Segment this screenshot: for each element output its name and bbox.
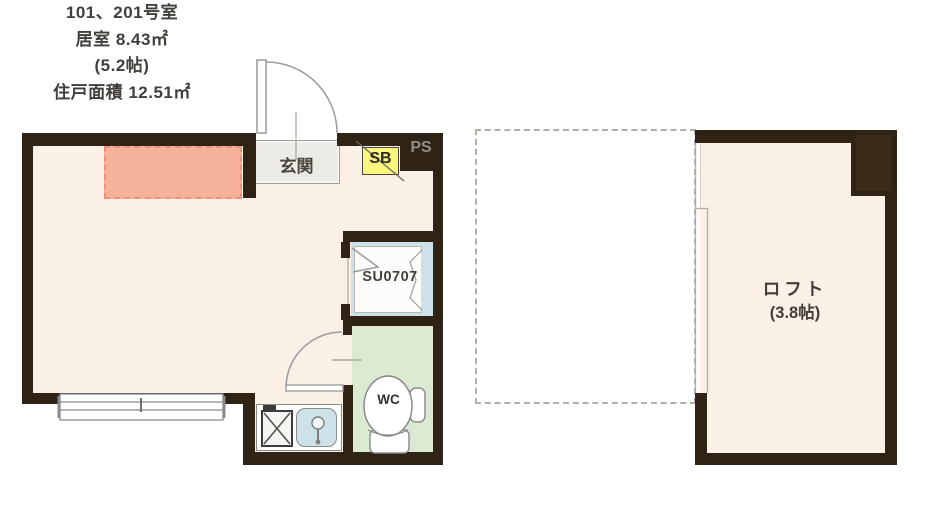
entrance-label: 玄関 [253, 152, 340, 177]
swing-door-icon [286, 332, 362, 391]
faucet-icon [312, 417, 324, 444]
toilet-label: WC [366, 392, 411, 407]
loft-size-label: (3.8帖) [725, 299, 865, 323]
sliding-window-icon [59, 394, 225, 420]
unit-bath-label: SU0707 [346, 269, 434, 285]
entrance-door-swing-icon [257, 60, 337, 160]
loft-label: ロフト [725, 276, 865, 301]
floorplan-canvas: 101、201号室 居室 8.43㎡ (5.2帖) 住戸面積 12.51㎡ 玄関… [0, 0, 945, 531]
loft-opening-edge [695, 143, 708, 393]
toilet-icon [364, 376, 425, 453]
shoebox-label: SB [362, 150, 399, 168]
stove-burner-lines [263, 405, 290, 444]
pipe-space-label: PS [402, 139, 440, 157]
fixtures-layer [0, 0, 945, 531]
